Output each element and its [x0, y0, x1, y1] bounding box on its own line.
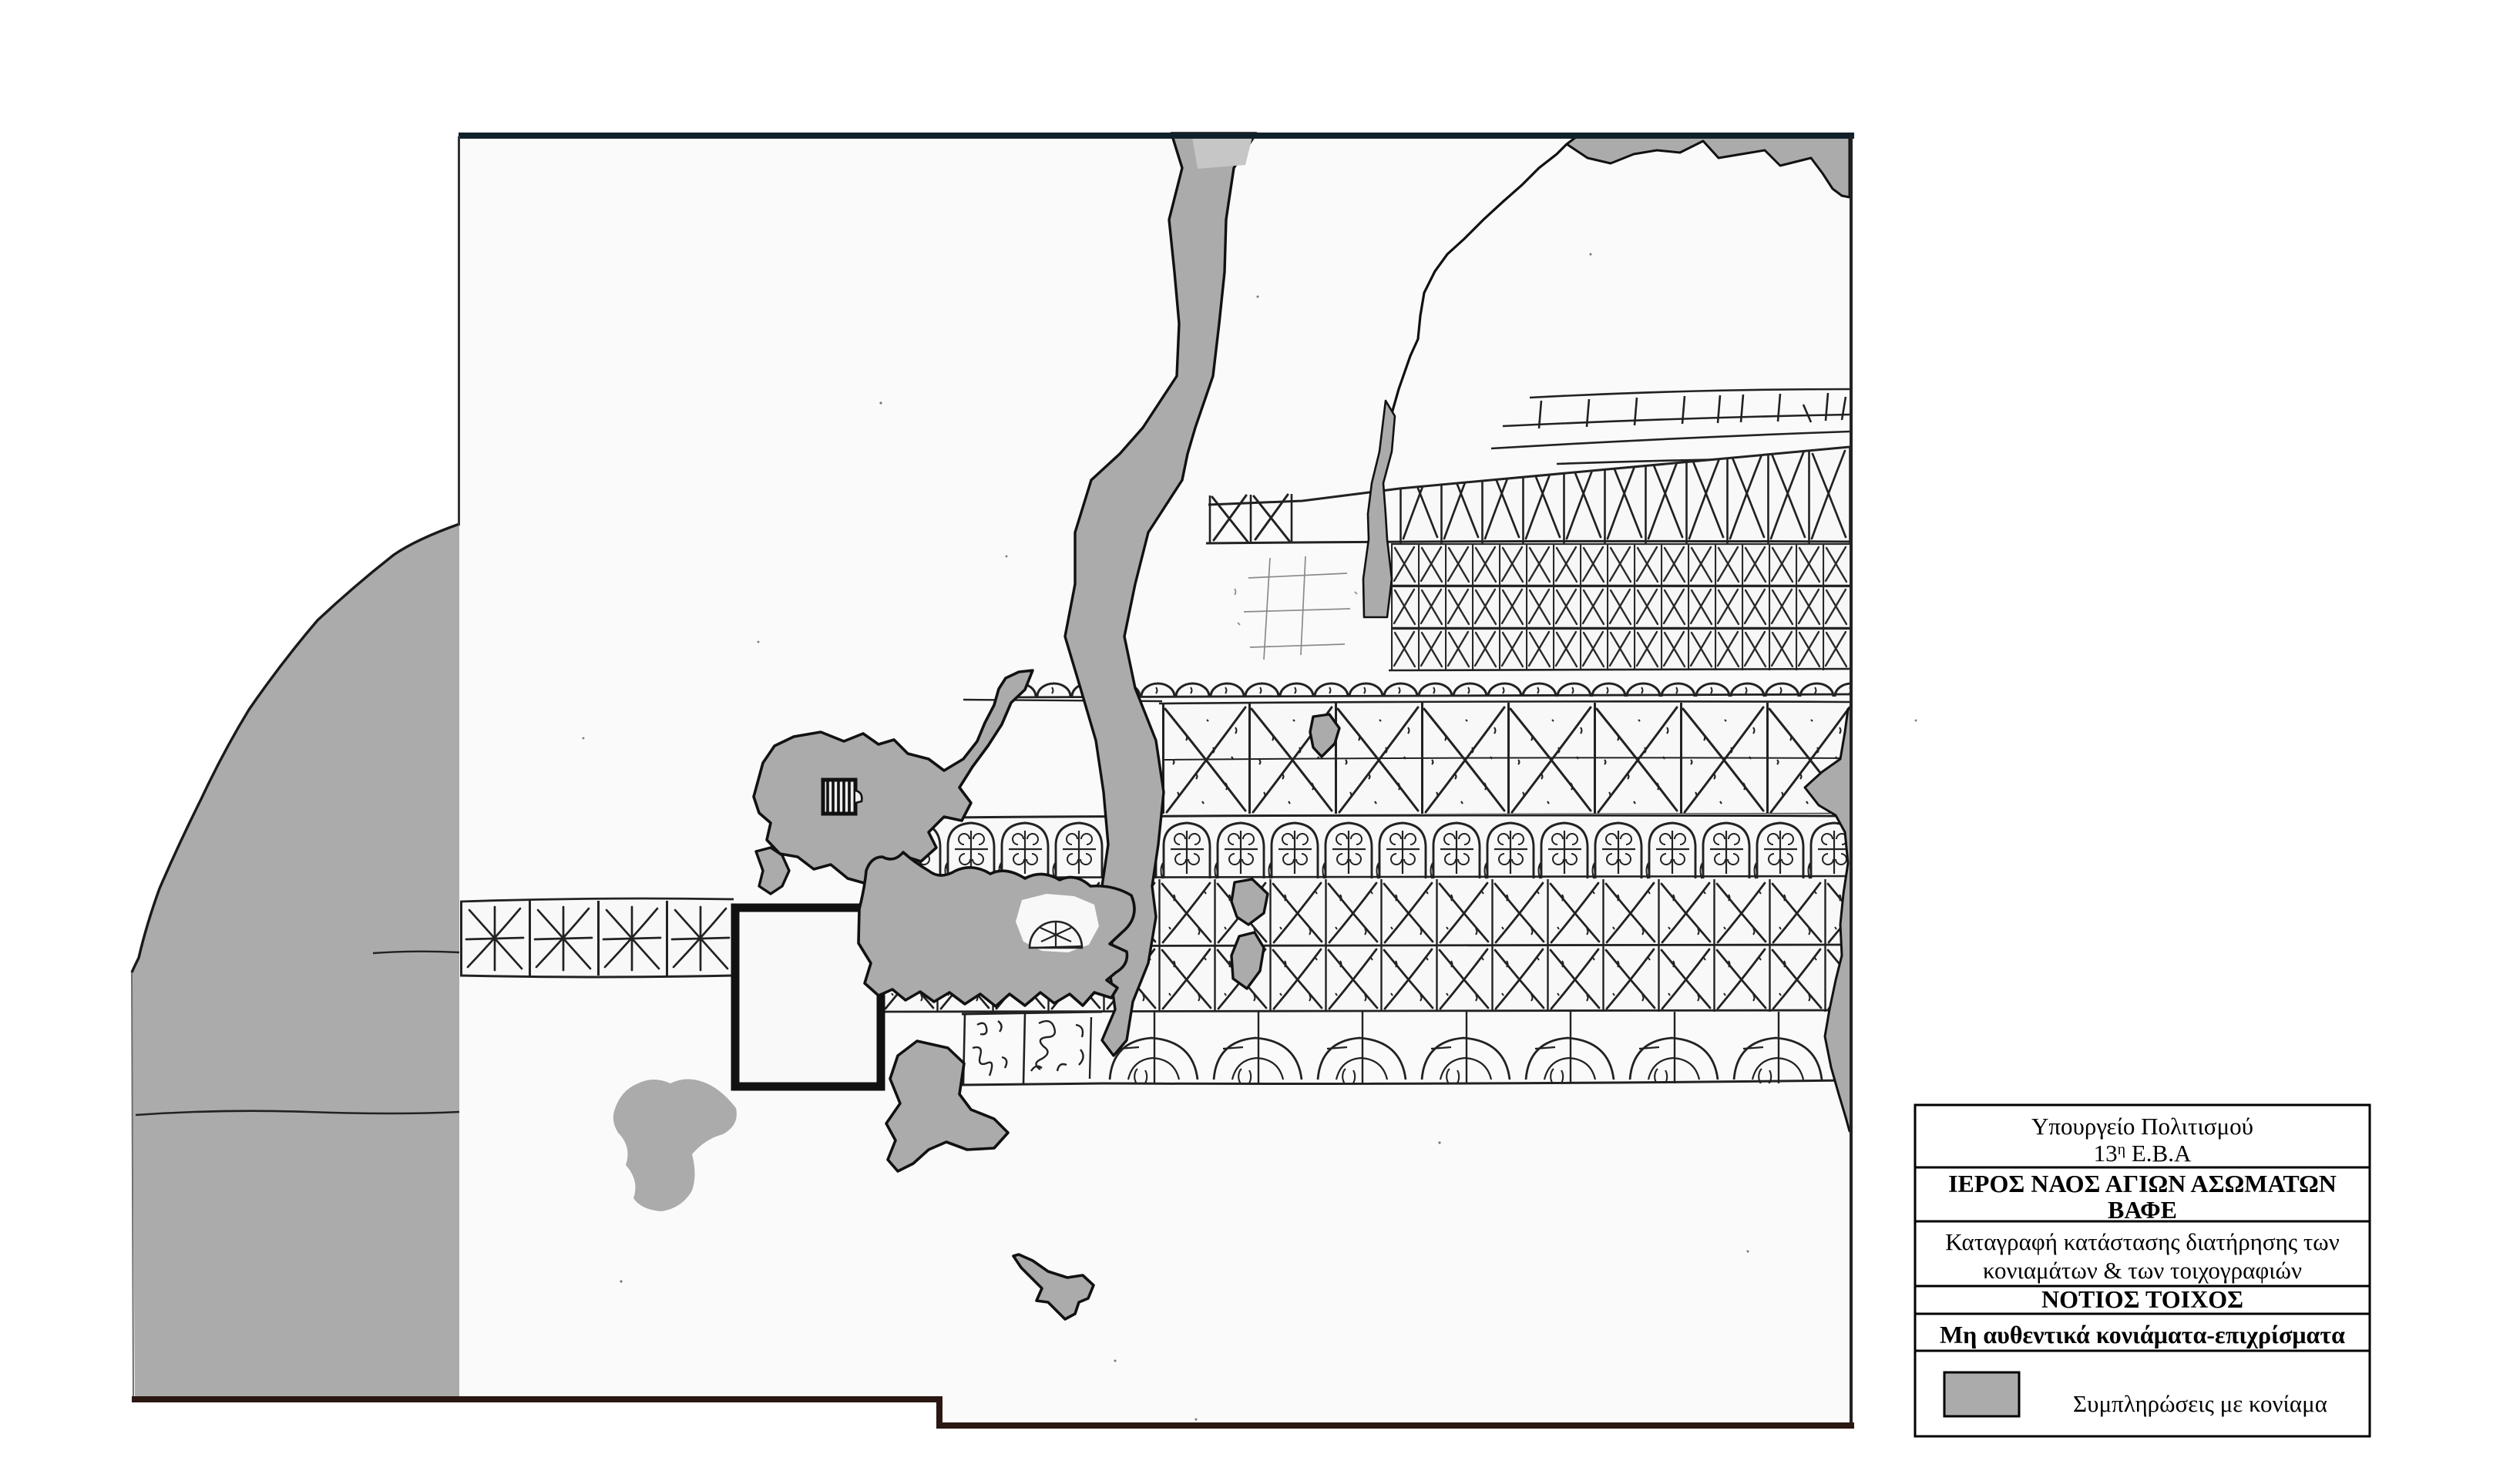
- svg-text:Μη αυθεντικά κονιάματα-επιχρίσ: Μη αυθεντικά κονιάματα-επιχρίσματα: [1940, 1321, 2345, 1348]
- svg-text:13η Ε.Β.Α: 13η Ε.Β.Α: [2094, 1140, 2192, 1167]
- svg-text:ΙΕΡΟΣ ΝΑΟΣ ΑΓΙΩΝ ΑΣΩΜΑΤΩΝ: ΙΕΡΟΣ ΝΑΟΣ ΑΓΙΩΝ ΑΣΩΜΑΤΩΝ: [1948, 1170, 2337, 1197]
- svg-text:κονιαμάτων & των τοιχογραφιών: κονιαμάτων & των τοιχογραφιών: [1983, 1257, 2302, 1284]
- svg-text:ΝΟΤΙΟΣ ΤΟΙΧΟΣ: ΝΟΤΙΟΣ ΤΟΙΧΟΣ: [2041, 1285, 2243, 1313]
- svg-text:Καταγραφή κατάστασης διατήρηση: Καταγραφή κατάστασης διατήρησης των: [1945, 1228, 2339, 1255]
- svg-text:Υπουργείο Πολιτισμού: Υπουργείο Πολιτισμού: [2031, 1113, 2253, 1140]
- svg-text:Συμπληρώσεις με κονίαμα: Συμπληρώσεις με κονίαμα: [2073, 1390, 2327, 1417]
- svg-text:ΒΑΦΕ: ΒΑΦΕ: [2108, 1196, 2177, 1224]
